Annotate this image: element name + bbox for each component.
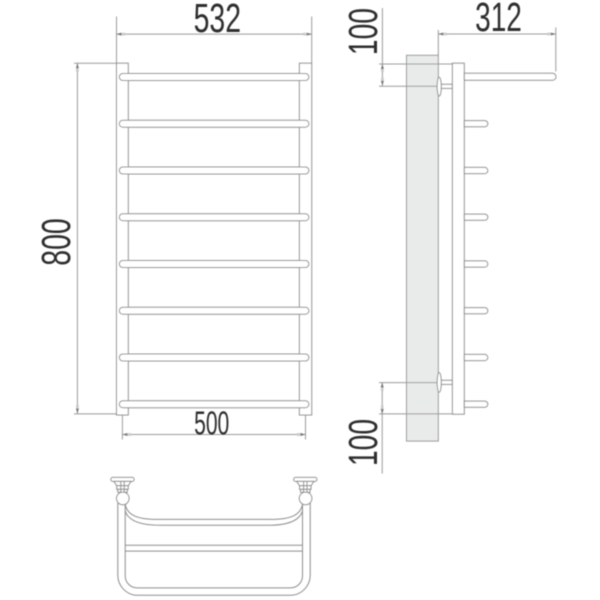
svg-text:100: 100 — [340, 419, 386, 466]
svg-text:100: 100 — [340, 8, 386, 55]
svg-text:532: 532 — [194, 0, 241, 41]
svg-text:312: 312 — [475, 0, 522, 40]
svg-text:500: 500 — [194, 405, 229, 442]
svg-text:800: 800 — [33, 218, 79, 265]
